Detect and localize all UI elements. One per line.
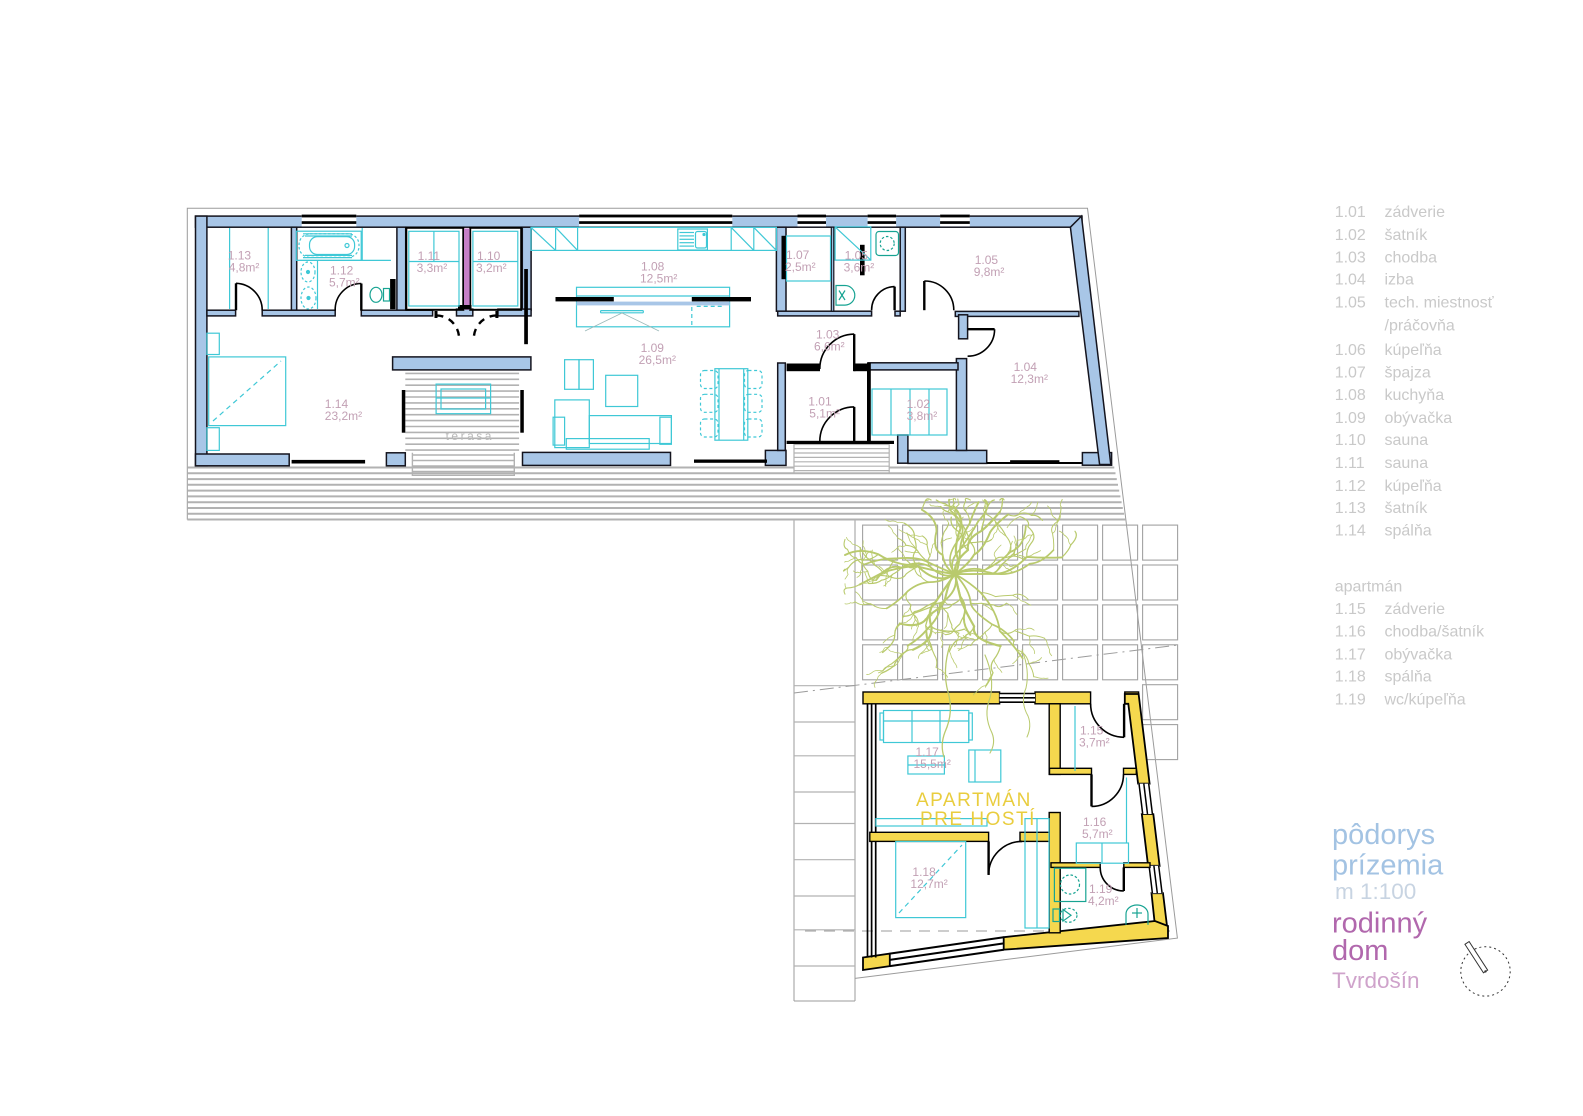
- svg-text:APARTMÁN: APARTMÁN: [916, 790, 1032, 811]
- svg-text:3,7m²: 3,7m²: [1079, 736, 1110, 750]
- svg-text:9,8m²: 9,8m²: [974, 265, 1005, 279]
- svg-text:1.06: 1.06: [1335, 342, 1366, 359]
- svg-text:prízemia: prízemia: [1332, 850, 1444, 882]
- svg-text:1.16: 1.16: [1335, 624, 1366, 641]
- svg-text:1.08: 1.08: [1335, 387, 1366, 404]
- svg-text:spálňa: spálňa: [1385, 669, 1432, 686]
- svg-text:1.13: 1.13: [1335, 500, 1366, 517]
- svg-text:kúpeľňa: kúpeľňa: [1385, 478, 1442, 495]
- svg-text:4,2m²: 4,2m²: [1088, 894, 1119, 908]
- svg-text:1.17: 1.17: [1335, 646, 1366, 663]
- svg-text:1.01: 1.01: [1335, 204, 1366, 221]
- svg-text:5,7m²: 5,7m²: [329, 276, 360, 290]
- svg-text:chodba: chodba: [1385, 249, 1438, 266]
- svg-text:1.04: 1.04: [1335, 272, 1366, 289]
- svg-text:PRE HOSTÍ: PRE HOSTÍ: [920, 809, 1036, 830]
- svg-text:spálňa: spálňa: [1385, 522, 1432, 539]
- svg-text:obývačka: obývačka: [1385, 410, 1453, 427]
- svg-text:15,5m²: 15,5m²: [914, 757, 951, 771]
- svg-text:zádverie: zádverie: [1385, 204, 1446, 221]
- svg-text:1.19: 1.19: [1335, 691, 1366, 708]
- svg-text:1.07: 1.07: [1335, 364, 1366, 381]
- svg-text:sauna: sauna: [1385, 455, 1429, 472]
- svg-text:sauna: sauna: [1385, 432, 1429, 449]
- svg-text:1.02: 1.02: [1335, 227, 1366, 244]
- svg-text:obývačka: obývačka: [1385, 646, 1453, 663]
- svg-text:1.12: 1.12: [1335, 478, 1366, 495]
- svg-text:tech. miestnosť: tech. miestnosť: [1385, 295, 1495, 312]
- svg-text:terasa: terasa: [446, 429, 494, 443]
- svg-text:3,6m²: 3,6m²: [844, 261, 875, 275]
- svg-text:izba: izba: [1385, 272, 1414, 289]
- svg-text:3,3m²: 3,3m²: [417, 261, 448, 275]
- svg-text:1.10: 1.10: [1335, 432, 1366, 449]
- svg-text:/práčovňa: /práčovňa: [1385, 317, 1455, 334]
- svg-text:1.03: 1.03: [1335, 249, 1366, 266]
- svg-text:26,5m²: 26,5m²: [639, 353, 676, 367]
- svg-text:šatník: šatník: [1385, 500, 1429, 517]
- svg-text:1.14: 1.14: [1335, 522, 1366, 539]
- svg-text:1.11: 1.11: [1335, 455, 1365, 472]
- svg-text:2,5m²: 2,5m²: [785, 260, 816, 274]
- svg-text:3,8m²: 3,8m²: [907, 409, 938, 423]
- svg-text:kúpeľňa: kúpeľňa: [1385, 342, 1442, 359]
- svg-text:pôdorys: pôdorys: [1332, 819, 1435, 851]
- svg-text:3,2m²: 3,2m²: [476, 261, 507, 275]
- svg-text:1.09: 1.09: [1335, 410, 1366, 427]
- svg-text:dom: dom: [1332, 935, 1388, 967]
- svg-text:12,5m²: 12,5m²: [640, 272, 677, 286]
- svg-text:5,7m²: 5,7m²: [1082, 827, 1113, 841]
- svg-text:6,6m²: 6,6m²: [814, 340, 845, 354]
- svg-text:zádverie: zádverie: [1385, 601, 1446, 618]
- svg-text:1.18: 1.18: [1335, 669, 1366, 686]
- svg-text:apartmán: apartmán: [1335, 578, 1403, 595]
- svg-text:šatník: šatník: [1385, 227, 1429, 244]
- svg-text:12,7m²: 12,7m²: [910, 877, 947, 891]
- svg-text:kuchyňa: kuchyňa: [1385, 387, 1445, 404]
- svg-text:Tvrdošín: Tvrdošín: [1332, 968, 1420, 993]
- svg-text:1.15: 1.15: [1335, 601, 1366, 618]
- svg-text:m 1:100: m 1:100: [1335, 879, 1416, 904]
- svg-text:12,3m²: 12,3m²: [1011, 372, 1048, 386]
- svg-text:špajza: špajza: [1385, 364, 1431, 381]
- svg-text:1.05: 1.05: [1335, 295, 1366, 312]
- svg-text:chodba/šatník: chodba/šatník: [1385, 624, 1486, 641]
- svg-text:5,1m²: 5,1m²: [809, 407, 840, 421]
- svg-text:wc/kúpeľňa: wc/kúpeľňa: [1384, 691, 1466, 708]
- svg-text:4,8m²: 4,8m²: [229, 261, 260, 275]
- svg-text:23,2m²: 23,2m²: [325, 409, 362, 423]
